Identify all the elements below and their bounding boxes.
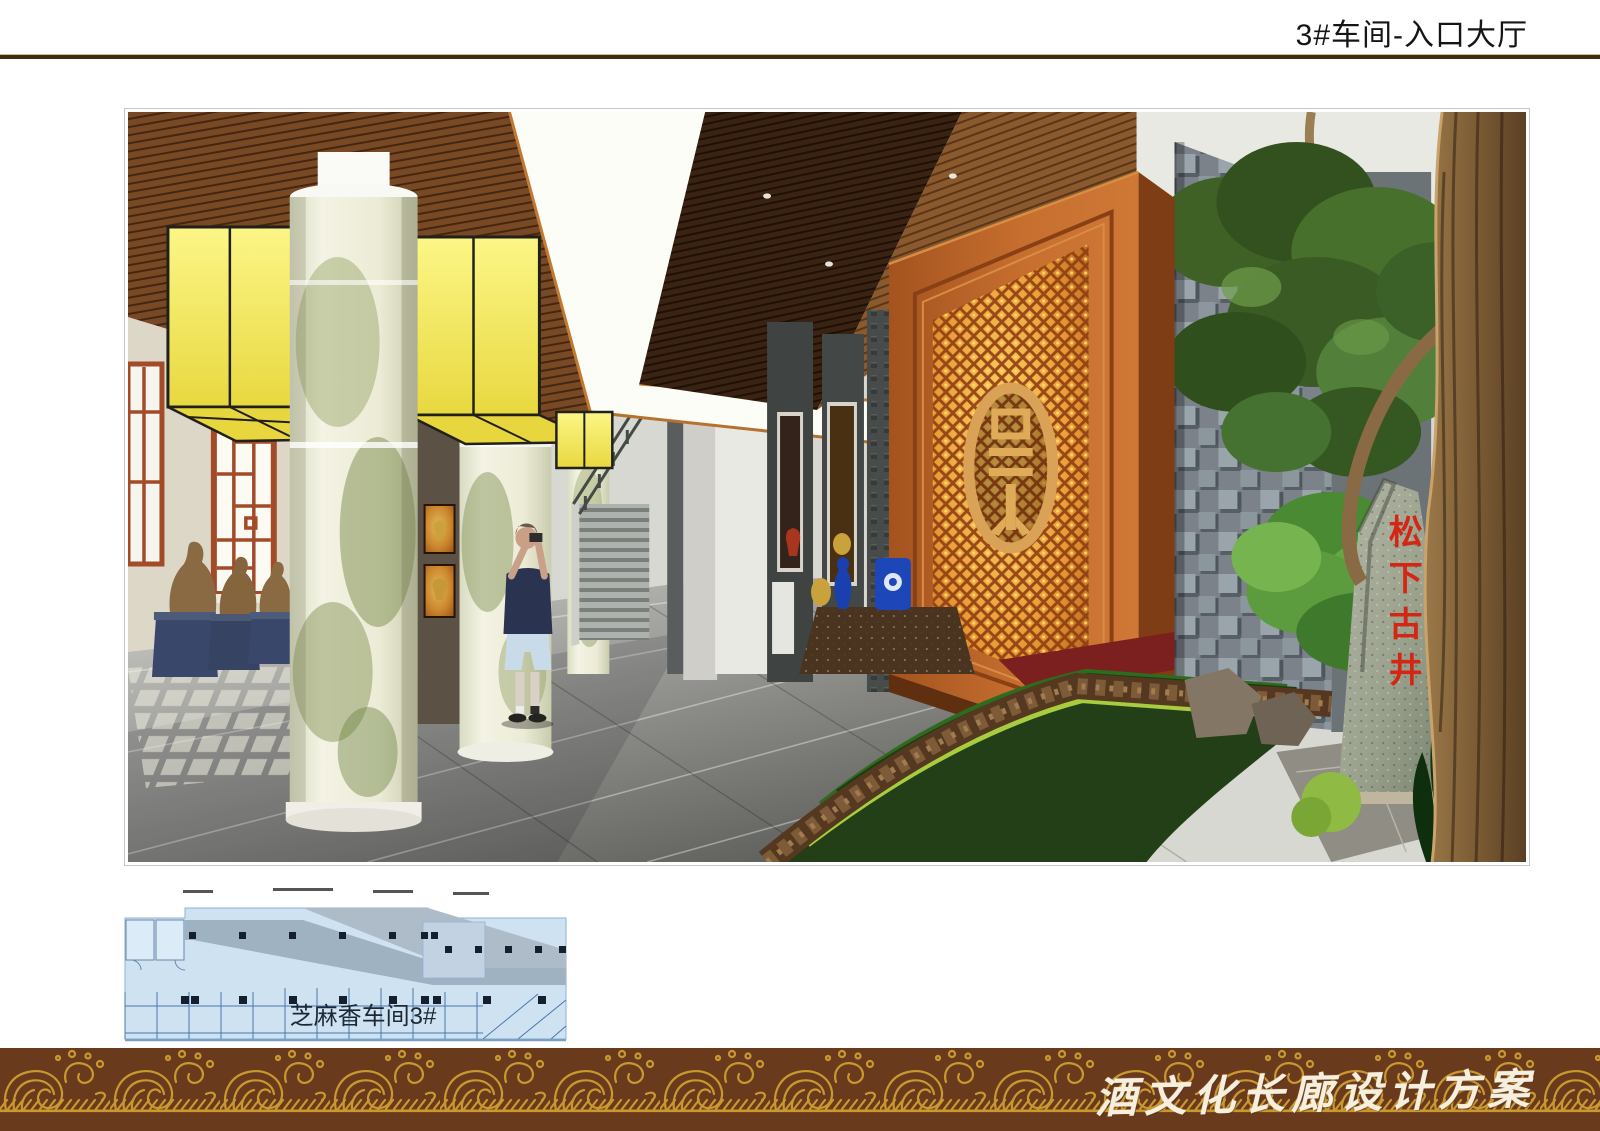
rendering-frame: 松下古井 bbox=[124, 108, 1530, 866]
painted-column-front bbox=[286, 152, 422, 832]
title-rule bbox=[0, 54, 1600, 59]
blue-vase-icon bbox=[834, 557, 851, 609]
gold-pot-icon bbox=[833, 533, 851, 555]
interior-rendering: 松下古井 bbox=[128, 112, 1526, 862]
floor-plan-label: 芝麻香车间3# bbox=[290, 1003, 437, 1030]
emblem-circle bbox=[969, 388, 1053, 548]
page-title: 3#车间-入口大厅 bbox=[1296, 10, 1528, 54]
lattice-window-partial bbox=[128, 364, 162, 564]
floor-plan: 芝麻香车间3# bbox=[123, 888, 568, 1045]
floor-plan-drawing: 芝麻香车间3# bbox=[123, 888, 568, 1045]
footer-band: 酒文化长廊设计方案 bbox=[0, 1048, 1600, 1131]
gold-pot-icon bbox=[811, 578, 831, 606]
plan-top-marks bbox=[183, 888, 489, 895]
camera-icon bbox=[529, 533, 542, 542]
footer-brand-text: 酒文化长廊设计方案 bbox=[1094, 1055, 1536, 1125]
stone-inscription-text: 松下古井 bbox=[1383, 514, 1422, 698]
